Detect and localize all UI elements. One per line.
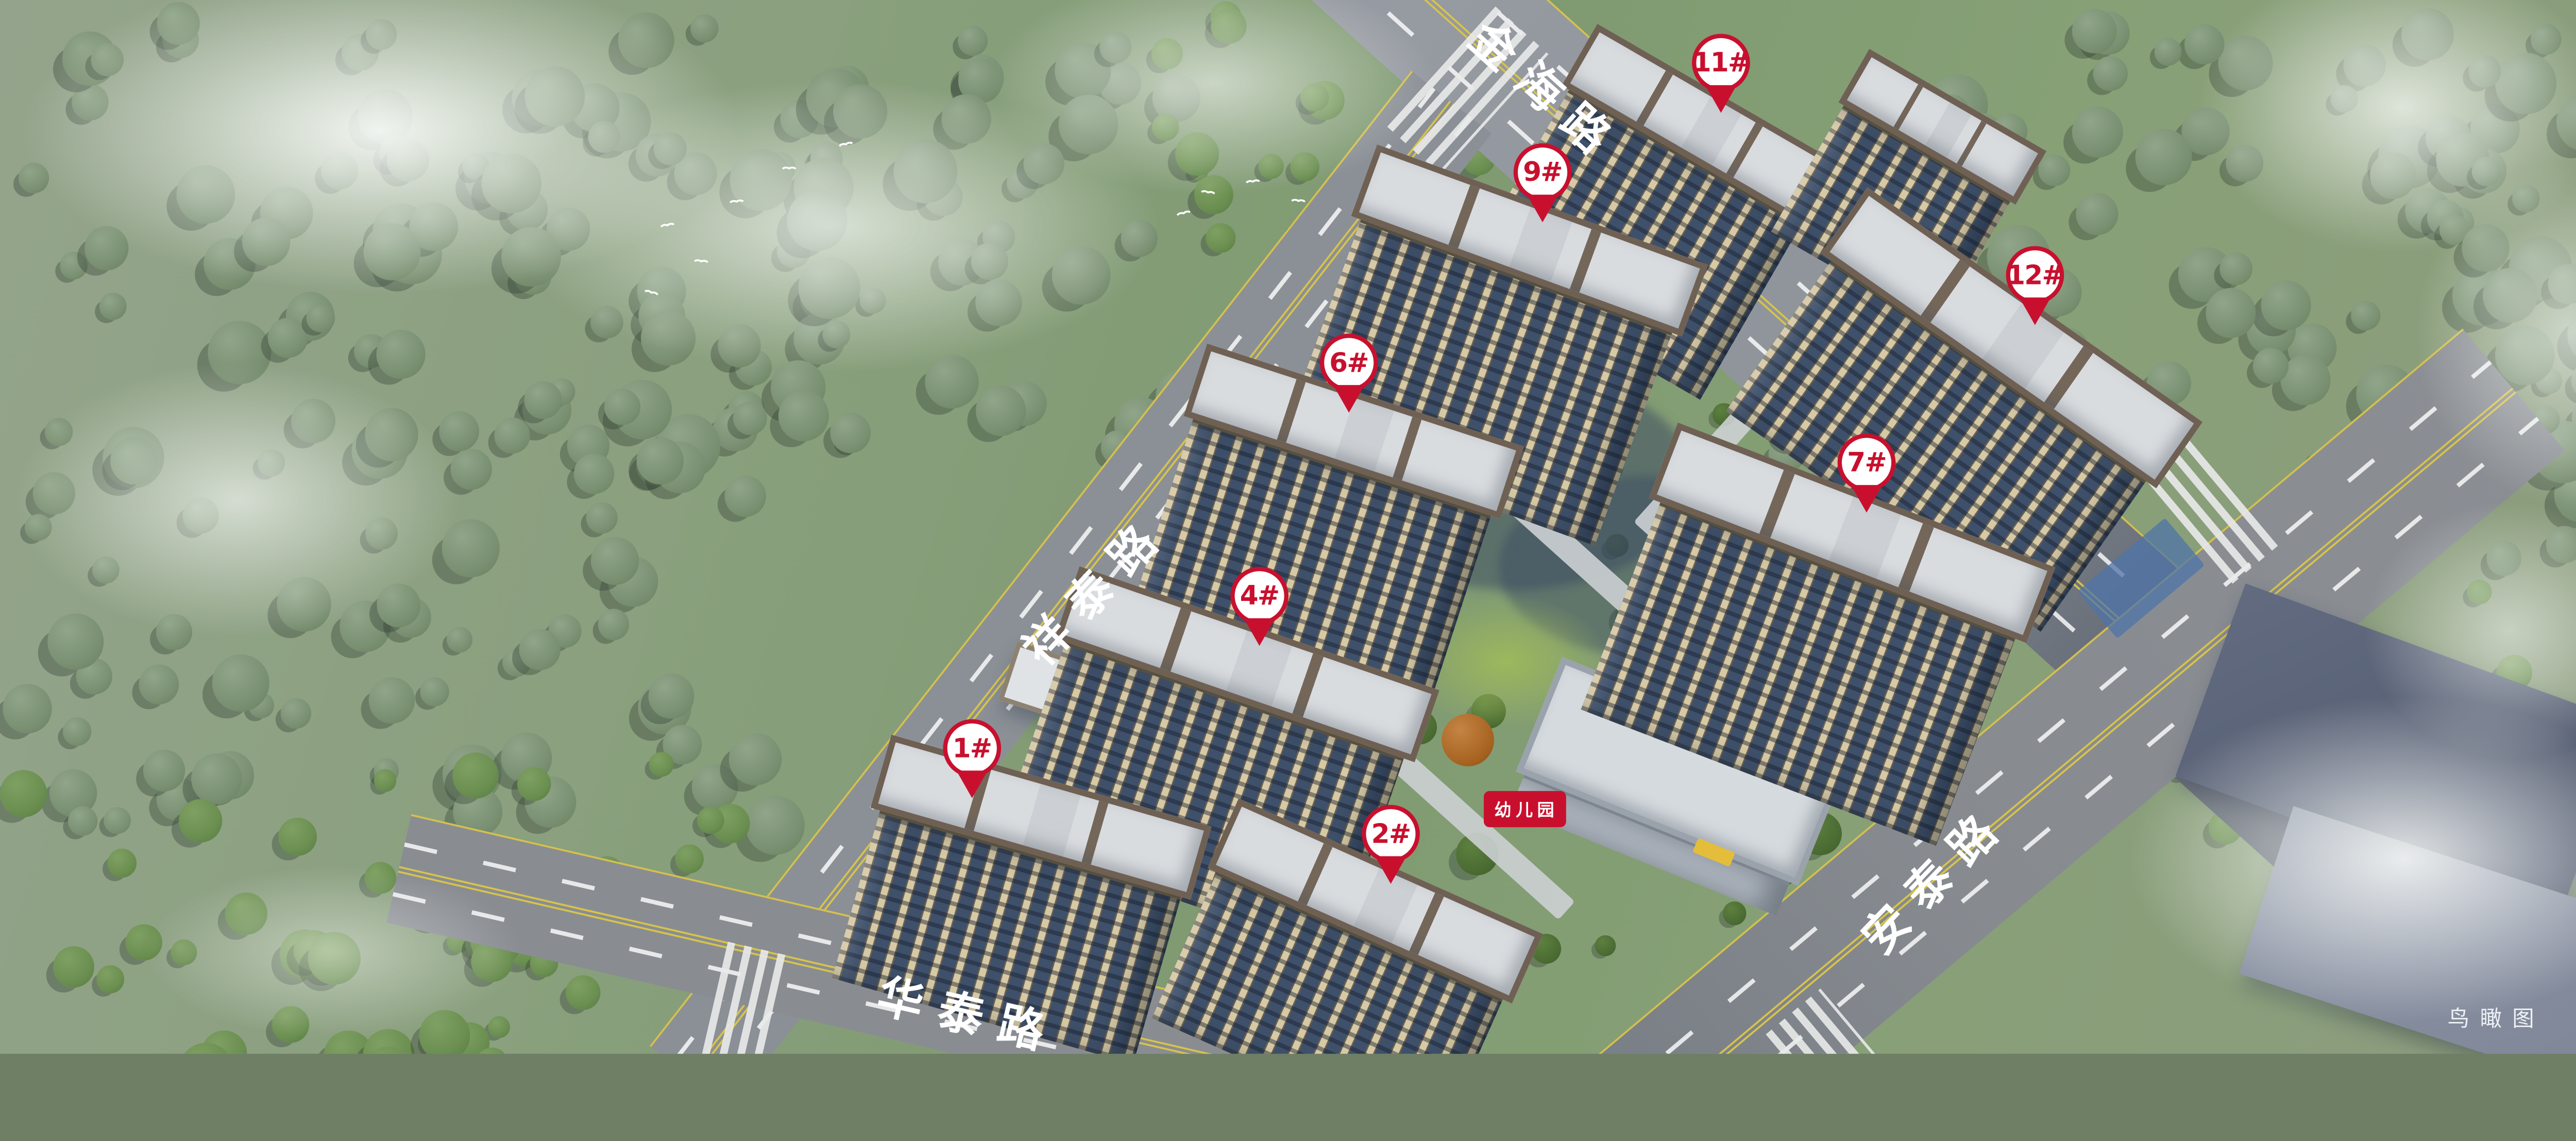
road-name-label: 安泰路 bbox=[1841, 786, 2021, 969]
building-marker: 11# bbox=[1692, 33, 1750, 112]
marker-label: 9# bbox=[1523, 157, 1562, 188]
marker-pointer-icon bbox=[1527, 195, 1558, 223]
aerial-rendering: 1# 2# 4# 6# 7# 9# 11# 12# bbox=[0, 0, 2576, 1054]
marker-label: 6# bbox=[1329, 347, 1368, 378]
building-marker: 9# bbox=[1514, 143, 1572, 222]
annotation-layer: 1# 2# 4# 6# 7# 9# 11# 12# bbox=[0, 0, 2576, 1054]
marker-label: 7# bbox=[1847, 447, 1886, 478]
marker-label: 11# bbox=[1693, 47, 1750, 78]
marker-circle: 2# bbox=[1362, 805, 1420, 863]
marker-pointer-icon bbox=[1244, 618, 1275, 646]
marker-pointer-icon bbox=[1705, 85, 1737, 113]
building-marker: 1# bbox=[943, 719, 1001, 798]
building-marker: 6# bbox=[1320, 333, 1378, 412]
marker-pointer-icon bbox=[1375, 857, 1406, 884]
marker-circle: 4# bbox=[1230, 567, 1289, 625]
building-marker: 7# bbox=[1838, 433, 1896, 512]
marker-circle: 11# bbox=[1692, 33, 1750, 92]
marker-pointer-icon bbox=[956, 770, 988, 798]
marker-label: 2# bbox=[1371, 818, 1411, 849]
building-marker: 12# bbox=[2006, 246, 2064, 325]
marker-pointer-icon bbox=[1333, 385, 1365, 413]
marker-label: 4# bbox=[1240, 580, 1279, 611]
marker-circle: 9# bbox=[1514, 143, 1572, 202]
building-marker: 2# bbox=[1362, 805, 1420, 884]
road-name-label: 祥泰路 bbox=[1002, 497, 1180, 681]
marker-circle: 12# bbox=[2006, 246, 2064, 304]
marker-circle: 1# bbox=[943, 719, 1001, 778]
marker-circle: 6# bbox=[1320, 333, 1378, 392]
marker-pointer-icon bbox=[2020, 297, 2051, 325]
marker-pointer-icon bbox=[1851, 485, 1883, 513]
facility-label: 幼儿园 bbox=[1484, 791, 1566, 827]
marker-label: 1# bbox=[953, 733, 992, 764]
road-name-label: 华泰路 bbox=[867, 958, 1067, 1053]
marker-circle: 7# bbox=[1838, 433, 1896, 492]
building-marker: 4# bbox=[1230, 567, 1289, 646]
caption-birdseye-view: 鸟瞰图 bbox=[2448, 1001, 2545, 1033]
marker-label: 12# bbox=[2007, 260, 2063, 291]
